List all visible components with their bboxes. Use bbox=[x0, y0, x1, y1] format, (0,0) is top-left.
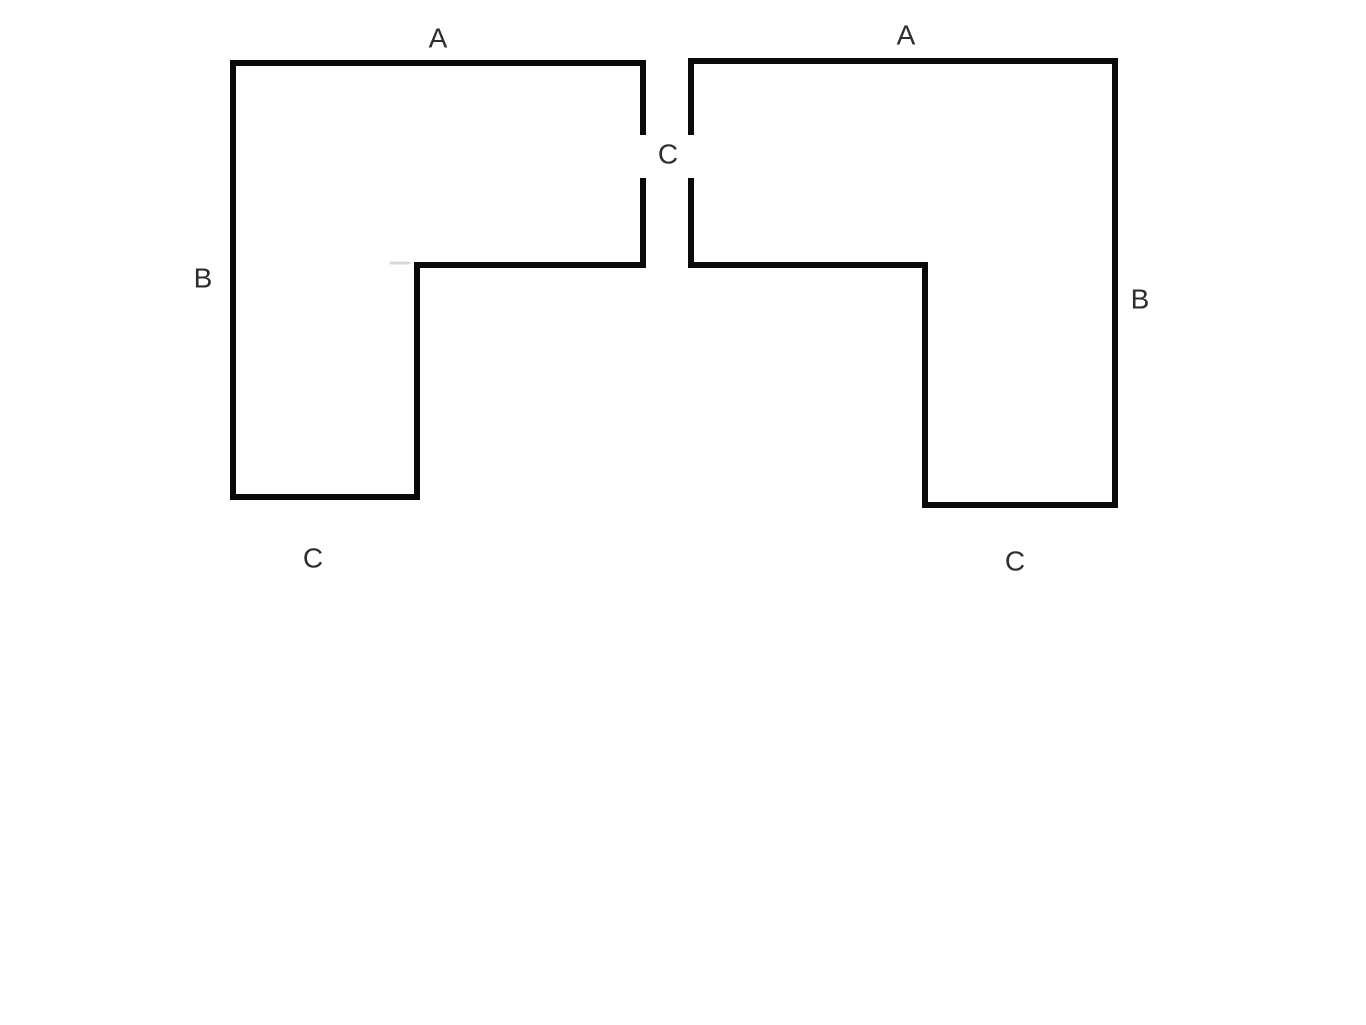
label-c-middle: C bbox=[658, 139, 678, 170]
label-a-right: A bbox=[897, 20, 916, 51]
label-b-left: B bbox=[194, 263, 213, 294]
label-c-bottom-right: C bbox=[1005, 546, 1025, 577]
geometry-diagram: AABBCCC bbox=[0, 0, 1366, 1025]
label-b-right: B bbox=[1131, 284, 1150, 315]
label-a-left: A bbox=[429, 23, 448, 54]
label-c-bottom-left: C bbox=[303, 543, 323, 574]
diagram-page: AABBCCC bbox=[0, 0, 1366, 1025]
